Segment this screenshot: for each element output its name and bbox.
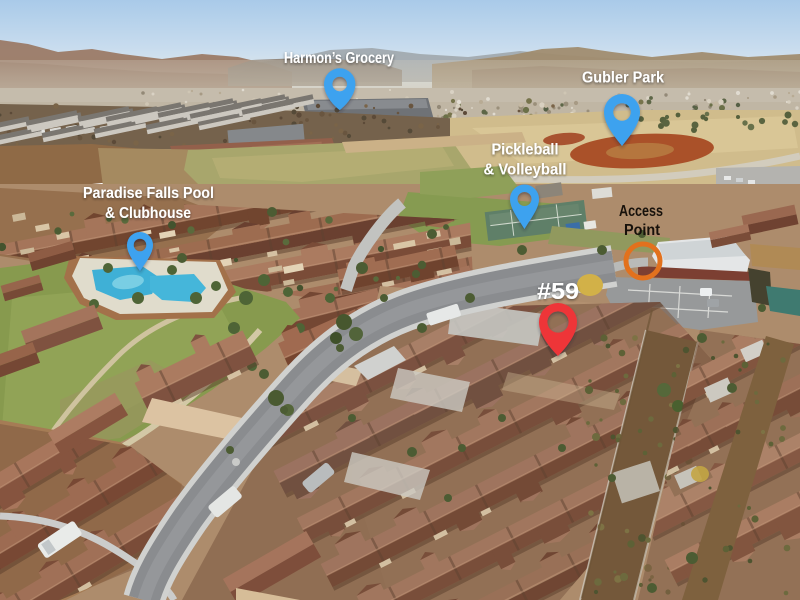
svg-text:Access: Access — [619, 203, 663, 220]
svg-text:& Clubhouse: & Clubhouse — [105, 205, 191, 222]
svg-text:& Volleyball: & Volleyball — [484, 162, 567, 179]
svg-text:Point: Point — [624, 222, 661, 239]
svg-text:Paradise Falls Pool: Paradise Falls Pool — [83, 185, 214, 202]
svg-text:Gubler Park: Gubler Park — [582, 70, 664, 87]
svg-text:#59: #59 — [537, 278, 579, 304]
svg-text:Pickleball: Pickleball — [492, 142, 559, 159]
svg-text:Harmon’s Grocery: Harmon’s Grocery — [284, 50, 394, 67]
